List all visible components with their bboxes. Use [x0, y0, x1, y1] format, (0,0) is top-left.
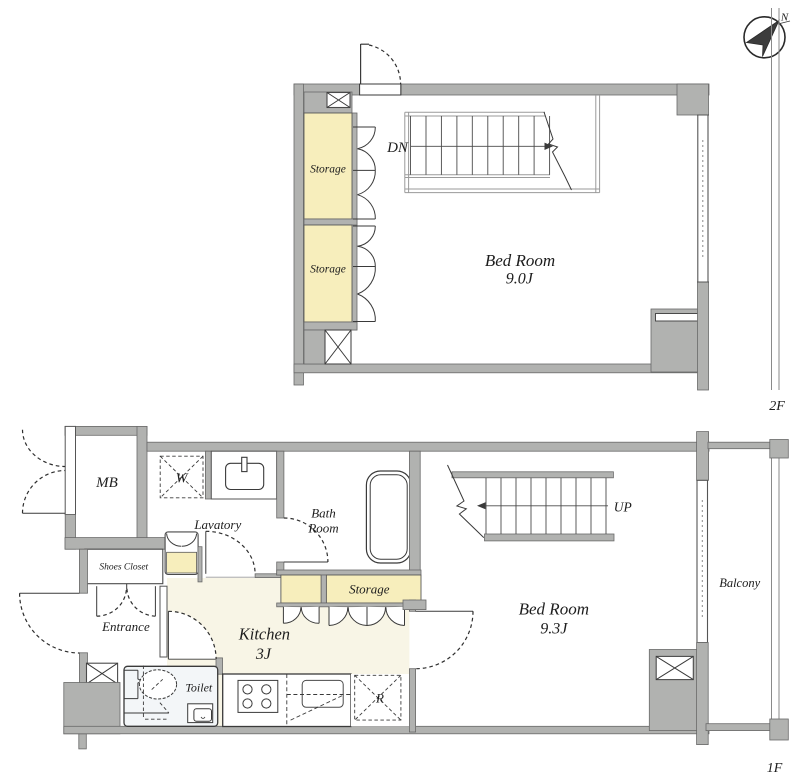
- svg-text:Storage: Storage: [310, 264, 346, 276]
- svg-text:W: W: [176, 472, 189, 487]
- svg-text:Storage: Storage: [310, 164, 346, 176]
- svg-text:Balcony: Balcony: [719, 576, 760, 590]
- svg-text:9.3J: 9.3J: [540, 621, 568, 638]
- svg-text:2F: 2F: [769, 399, 785, 414]
- svg-text:DN: DN: [386, 140, 409, 156]
- svg-text:Lavatory: Lavatory: [193, 517, 241, 532]
- svg-text:Bed Room: Bed Room: [485, 251, 555, 270]
- svg-text:Bath: Bath: [311, 506, 336, 521]
- svg-text:Entrance: Entrance: [101, 619, 150, 634]
- svg-text:Bed Room: Bed Room: [519, 600, 589, 619]
- svg-text:Shoes Closet: Shoes Closet: [99, 563, 148, 573]
- svg-text:UP: UP: [614, 500, 632, 515]
- svg-text:1F: 1F: [767, 761, 783, 776]
- svg-text:R: R: [375, 691, 384, 706]
- svg-text:3J: 3J: [255, 646, 272, 663]
- svg-text:9.0J: 9.0J: [506, 271, 534, 288]
- svg-text:Storage: Storage: [349, 582, 390, 597]
- svg-text:MB: MB: [95, 475, 118, 491]
- svg-text:Kitchen: Kitchen: [238, 625, 290, 644]
- svg-text:Room: Room: [307, 521, 338, 536]
- svg-text:Toilet: Toilet: [185, 681, 213, 695]
